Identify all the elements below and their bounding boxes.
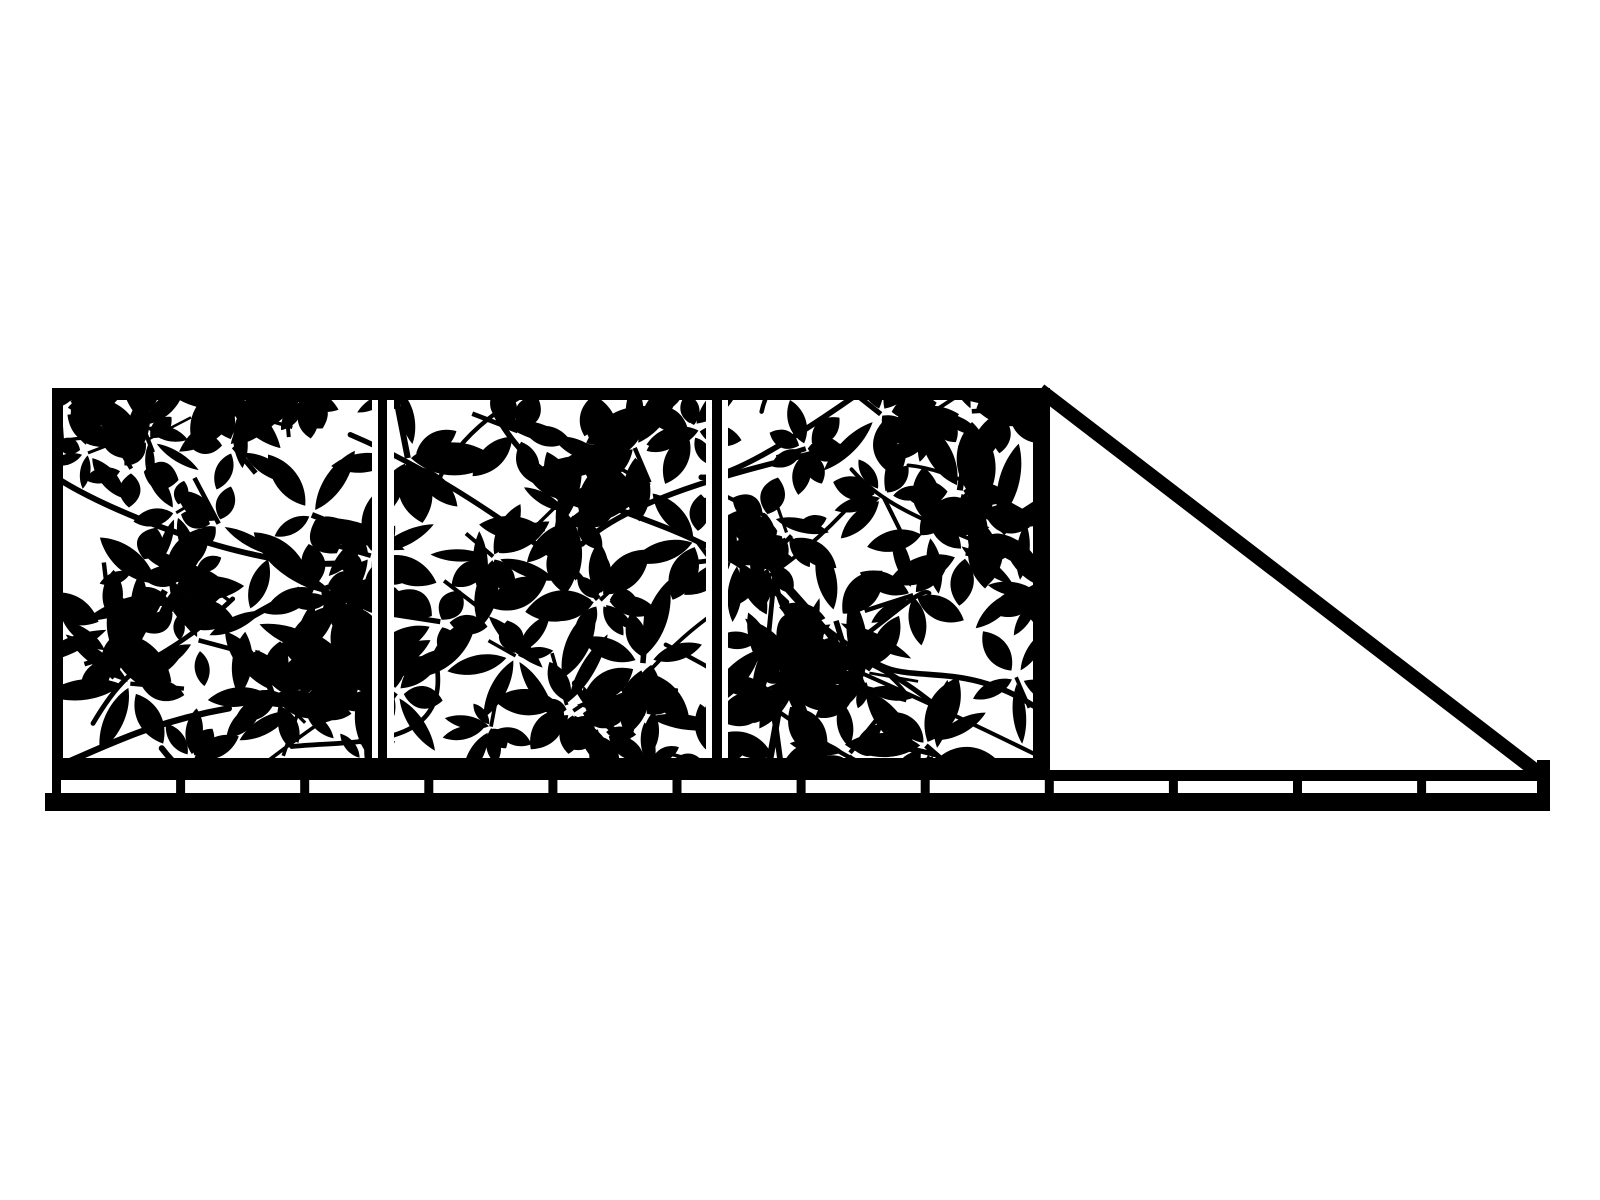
rail-tick <box>424 780 433 793</box>
frame-bottom-bar <box>52 758 1050 780</box>
rail-tick <box>176 780 185 793</box>
rail-tick <box>300 780 309 793</box>
rail-tick <box>921 780 930 793</box>
panel-divider <box>378 400 387 758</box>
end-post <box>1537 760 1550 793</box>
rail-tick <box>52 780 61 793</box>
gate-illustration <box>0 0 1600 1200</box>
tail-rail-bar <box>1050 770 1550 781</box>
rail-tick <box>1417 780 1426 793</box>
panel-divider <box>712 400 722 758</box>
rail-tick <box>797 780 806 793</box>
rail-tick <box>1169 780 1178 793</box>
rail-tick <box>1293 780 1302 793</box>
frame-top-bar <box>52 388 1050 400</box>
diagonal-brace <box>1040 390 1544 777</box>
rail-ticks <box>52 780 1426 793</box>
sliding-gate-silhouette <box>0 0 1600 1200</box>
ground-track-bar <box>45 793 1550 811</box>
rail-tick <box>673 780 682 793</box>
frame-right-bar <box>1033 388 1050 780</box>
frame-left-bar <box>52 388 63 780</box>
rail-tick <box>548 780 557 793</box>
rail-tick <box>1045 780 1054 793</box>
